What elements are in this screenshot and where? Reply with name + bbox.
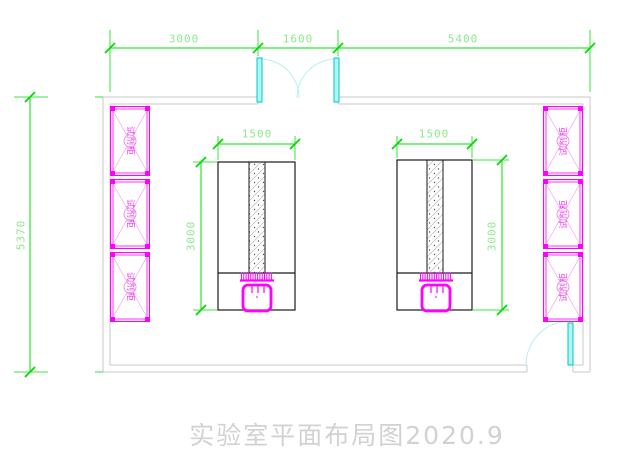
dim-right-bench-width: 1500 (419, 128, 450, 141)
double-door (257, 58, 339, 102)
right-lab-bench (397, 160, 472, 311)
door-leaf (257, 58, 262, 102)
room-walls (103, 97, 590, 372)
dim-top-5400: 5400 (448, 33, 479, 46)
dimension-lines (14, 30, 595, 377)
reagent-shelf-hatch (249, 162, 265, 273)
cabinet-label: 试剂柜 (557, 199, 570, 229)
dim-left-bench-depth: 3000 (185, 221, 198, 252)
cabinet-label: 试剂柜 (557, 272, 570, 302)
dim-top-3000: 3000 (169, 33, 200, 46)
drawing-title: 实验室平面布局图2020.9 (189, 416, 504, 452)
cad-floor-plan: 3000 1600 5400 5370 1500 3000 1500 3000 … (0, 0, 619, 469)
floor-plan-drawing (0, 0, 619, 469)
cabinet-label: 试剂柜 (125, 199, 138, 229)
dim-top-1600: 1600 (283, 33, 314, 46)
door-leaf (334, 58, 339, 102)
reagent-shelf-hatch (427, 160, 443, 273)
door-leaf (568, 323, 573, 365)
single-door (526, 321, 573, 365)
dim-left-bench-width: 1500 (242, 128, 273, 141)
dim-left-wall: 5370 (15, 220, 28, 251)
door-swing-arc (297, 59, 336, 98)
cabinet-label: 试剂柜 (125, 126, 138, 156)
door-swing-arc (526, 321, 570, 365)
dim-right-bench-depth: 3000 (486, 221, 499, 252)
left-lab-bench (218, 162, 295, 311)
cabinet-label: 试剂柜 (557, 126, 570, 156)
door-swing-arc (260, 59, 299, 98)
cabinet-label: 试剂柜 (125, 272, 138, 302)
